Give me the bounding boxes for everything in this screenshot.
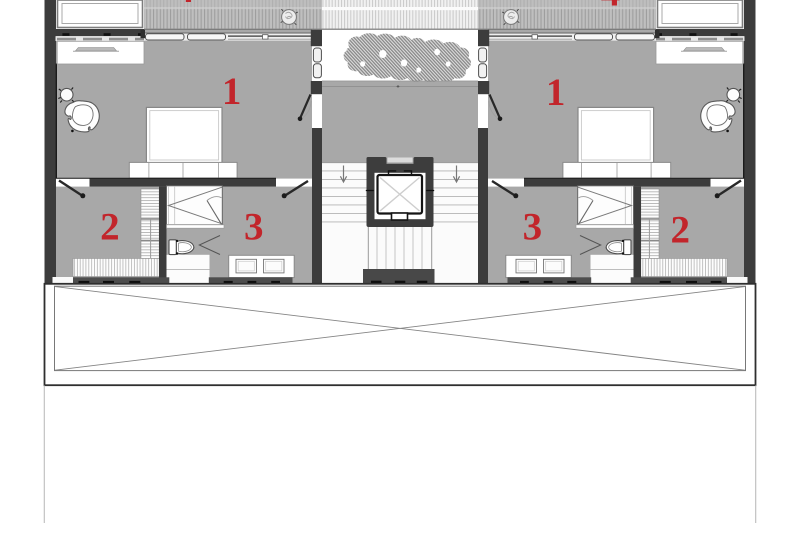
svg-text:1: 1 xyxy=(546,71,566,114)
svg-text:3: 3 xyxy=(244,206,264,249)
svg-text:4: 4 xyxy=(175,0,195,11)
svg-text:4: 4 xyxy=(601,0,621,15)
svg-text:3: 3 xyxy=(523,206,543,249)
svg-text:1: 1 xyxy=(222,70,242,113)
svg-text:2: 2 xyxy=(670,209,690,252)
svg-text:2: 2 xyxy=(100,206,120,249)
